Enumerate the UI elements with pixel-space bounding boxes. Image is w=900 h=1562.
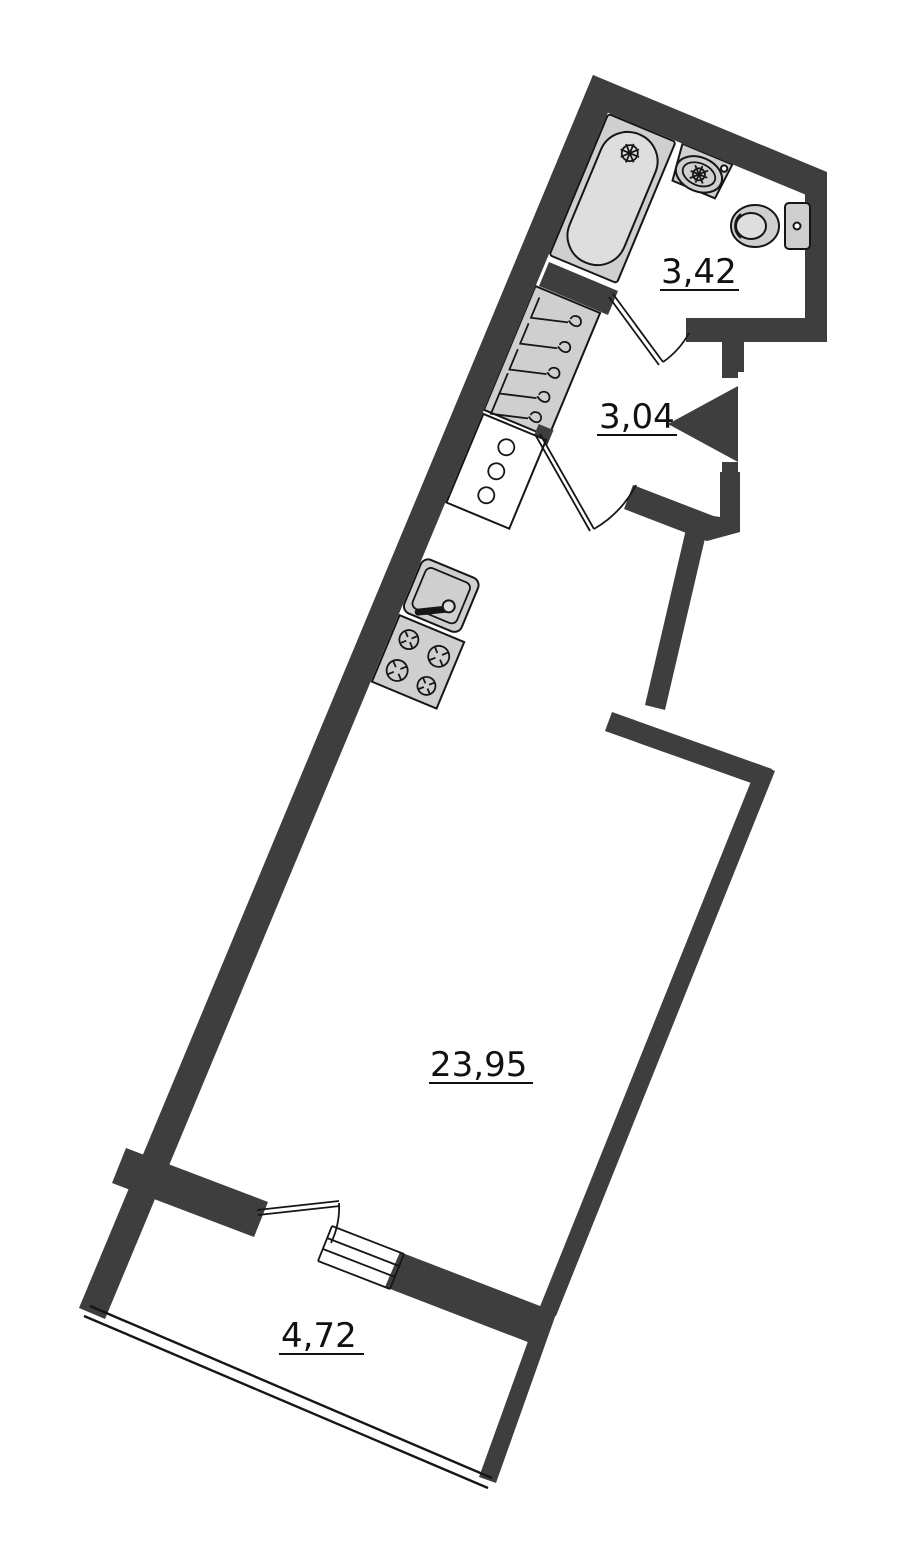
bathroom-door bbox=[609, 294, 689, 365]
area-label-living-room: 23,95 bbox=[430, 1045, 527, 1085]
door-swing-arc-icon bbox=[663, 333, 689, 362]
wall-entrance-upper bbox=[722, 318, 744, 372]
wall-room-step bbox=[605, 712, 772, 788]
wall-room-right-long bbox=[539, 764, 775, 1316]
wall-room-right-upper bbox=[645, 512, 710, 710]
wall-bathroom-bottom bbox=[686, 318, 827, 342]
wall-bathroom-right bbox=[805, 172, 827, 342]
entrance-jamb-top bbox=[722, 368, 738, 378]
area-label-balcony: 4,72 bbox=[281, 1316, 357, 1356]
openings bbox=[84, 294, 689, 1488]
area-label-hallway: 3,04 bbox=[599, 397, 675, 437]
floor-plan-canvas: 3,42 3,04 23,95 4,72 bbox=[0, 0, 900, 1562]
hallway-door bbox=[536, 434, 636, 531]
wall-balcony-divider-right bbox=[385, 1252, 553, 1346]
toilet-icon bbox=[731, 203, 810, 249]
entrance-jamb-bottom bbox=[722, 462, 738, 472]
door-swing-arc-icon bbox=[331, 1203, 339, 1243]
floor-plan-drawing: 3,42 3,04 23,95 4,72 bbox=[0, 0, 900, 1562]
wall-left bbox=[79, 75, 619, 1319]
area-label-bathroom: 3,42 bbox=[661, 252, 737, 292]
entrance-door-triangle-icon bbox=[668, 386, 738, 462]
